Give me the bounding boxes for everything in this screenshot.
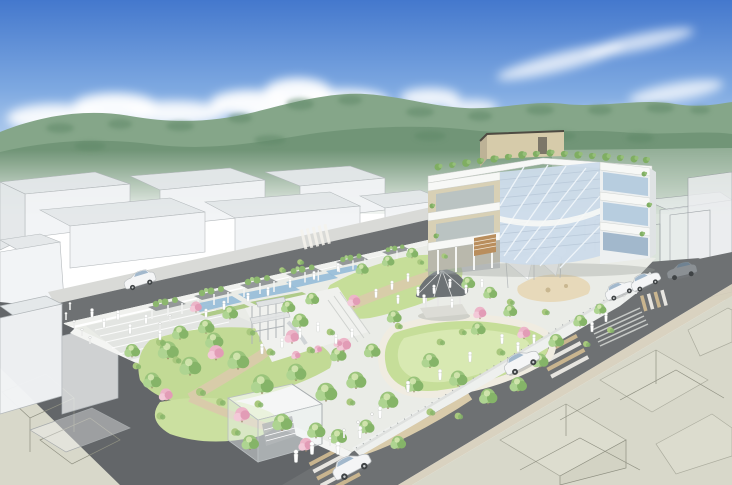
person [516,342,519,352]
person [406,381,410,392]
person [260,344,264,355]
person [480,279,483,288]
person [280,338,283,348]
person [532,334,535,344]
person [604,312,607,322]
person [422,294,425,304]
person [158,330,161,340]
person [337,263,340,272]
person [102,318,105,328]
person [266,287,269,296]
person [590,322,593,332]
person [289,279,292,288]
person [396,295,399,304]
person [334,334,337,344]
person [390,281,393,290]
person [204,309,207,318]
person [144,314,147,324]
architectural-rendering [0,0,732,485]
person [336,442,340,455]
person [222,301,225,310]
penthouse-door [538,137,547,154]
person [298,328,301,338]
person [450,298,453,308]
person [407,273,410,282]
person [438,369,442,380]
person [464,285,467,294]
person [432,285,435,294]
person [468,352,472,363]
person [246,293,249,302]
person [374,289,377,298]
person [310,442,314,455]
person [500,334,503,344]
person [294,450,298,463]
person [416,287,419,296]
person [448,279,451,288]
person [116,310,119,320]
rendering-canvas [0,0,732,485]
person [313,271,316,280]
person [378,407,382,419]
person [128,324,131,334]
person [350,328,353,338]
person [316,322,319,332]
building-right-cap [650,168,656,258]
person [90,308,93,318]
